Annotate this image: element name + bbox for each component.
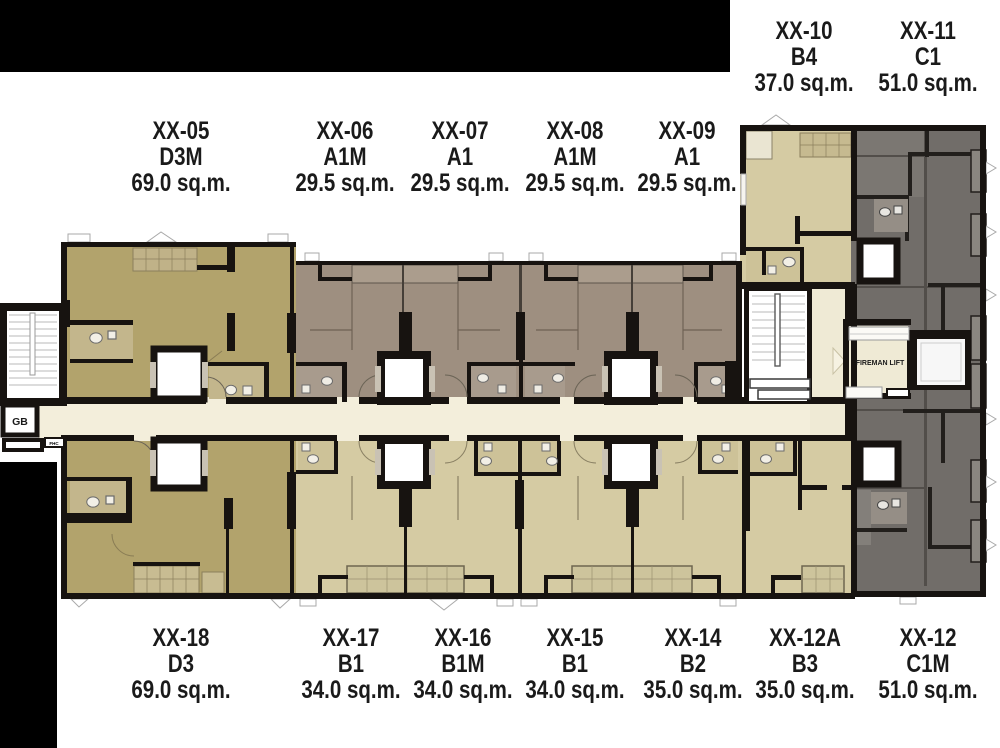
svg-text:34.0 sq.m.: 34.0 sq.m. xyxy=(525,675,624,703)
svg-text:FIREMAN LIFT: FIREMAN LIFT xyxy=(856,360,905,367)
svg-text:34.0 sq.m.: 34.0 sq.m. xyxy=(301,675,400,703)
svg-text:37.0 sq.m.: 37.0 sq.m. xyxy=(754,68,853,96)
svg-text:B1M: B1M xyxy=(441,649,484,677)
svg-text:D3M: D3M xyxy=(159,142,202,170)
svg-text:XX-05: XX-05 xyxy=(152,116,209,144)
svg-text:51.0 sq.m.: 51.0 sq.m. xyxy=(878,675,977,703)
svg-text:XX-17: XX-17 xyxy=(322,623,379,651)
svg-text:A1: A1 xyxy=(674,142,700,170)
svg-text:B4: B4 xyxy=(791,42,817,70)
svg-text:XX-11: XX-11 xyxy=(900,16,956,44)
svg-text:C1: C1 xyxy=(915,42,941,70)
svg-text:XX-09: XX-09 xyxy=(659,116,716,144)
svg-text:B1: B1 xyxy=(562,649,588,677)
svg-text:GB: GB xyxy=(12,416,28,428)
svg-text:A1M: A1M xyxy=(553,142,596,170)
svg-text:XX-10: XX-10 xyxy=(776,16,833,44)
svg-text:XX-08: XX-08 xyxy=(546,116,603,144)
svg-text:A1: A1 xyxy=(447,142,473,170)
svg-text:29.5 sq.m.: 29.5 sq.m. xyxy=(525,168,624,196)
svg-text:B3: B3 xyxy=(792,649,818,677)
svg-text:34.0 sq.m.: 34.0 sq.m. xyxy=(413,675,512,703)
svg-text:29.5 sq.m.: 29.5 sq.m. xyxy=(295,168,394,196)
svg-text:XX-06: XX-06 xyxy=(316,116,373,144)
svg-text:69.0 sq.m.: 69.0 sq.m. xyxy=(131,168,230,196)
svg-text:C1M: C1M xyxy=(906,649,949,677)
svg-text:69.0 sq.m.: 69.0 sq.m. xyxy=(131,675,230,703)
svg-text:XX-07: XX-07 xyxy=(432,116,489,144)
svg-text:XX-12A: XX-12A xyxy=(769,623,841,651)
svg-text:29.5 sq.m.: 29.5 sq.m. xyxy=(637,168,736,196)
svg-text:XX-12: XX-12 xyxy=(900,623,957,651)
svg-text:XX-18: XX-18 xyxy=(152,623,209,651)
svg-text:51.0 sq.m.: 51.0 sq.m. xyxy=(878,68,977,96)
svg-text:XX-16: XX-16 xyxy=(434,623,491,651)
svg-text:B1: B1 xyxy=(338,649,364,677)
svg-text:A1M: A1M xyxy=(323,142,366,170)
svg-text:XX-15: XX-15 xyxy=(546,623,603,651)
svg-text:XX-14: XX-14 xyxy=(664,623,721,651)
svg-text:29.5 sq.m.: 29.5 sq.m. xyxy=(410,168,509,196)
svg-text:FHC: FHC xyxy=(49,441,59,446)
svg-text:D3: D3 xyxy=(168,649,194,677)
svg-text:B2: B2 xyxy=(680,649,706,677)
svg-text:35.0 sq.m.: 35.0 sq.m. xyxy=(755,675,854,703)
svg-text:35.0 sq.m.: 35.0 sq.m. xyxy=(643,675,742,703)
